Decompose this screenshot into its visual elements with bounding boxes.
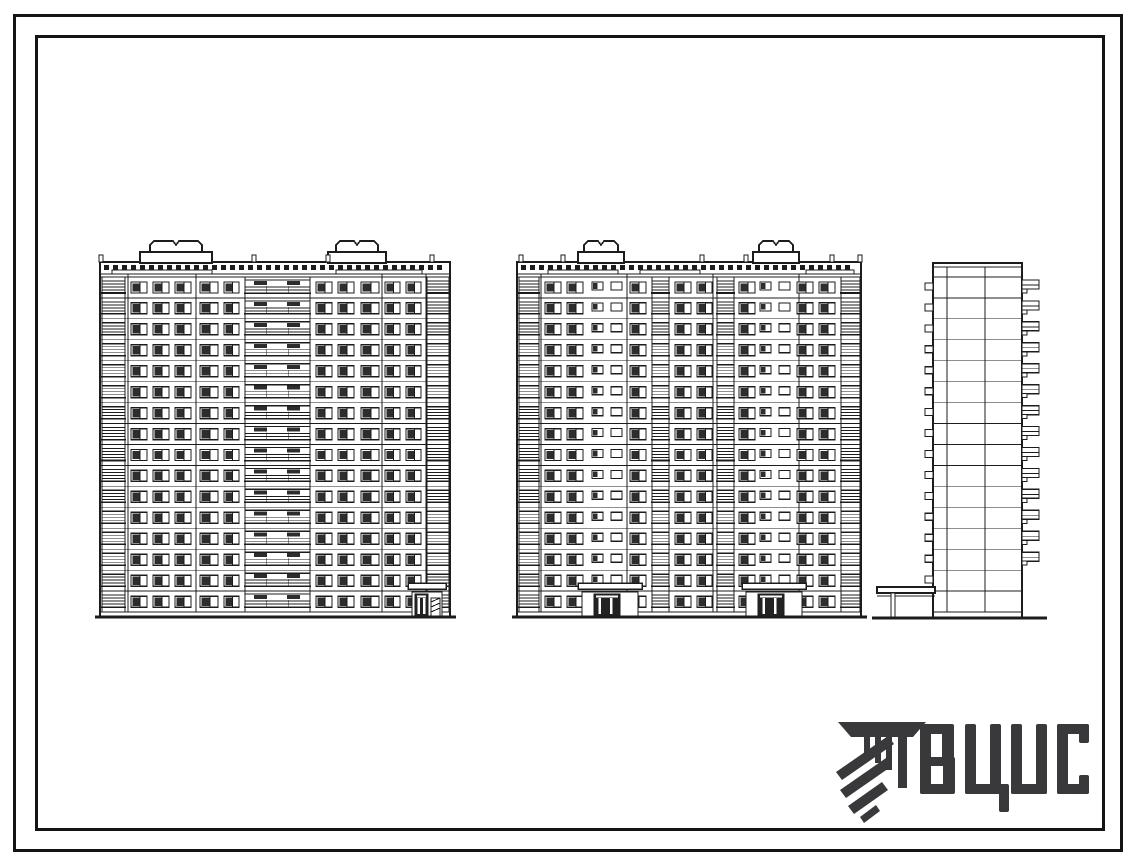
window-pane <box>154 597 161 605</box>
machine-room-hat <box>150 241 202 252</box>
window-pane <box>176 472 183 480</box>
window-pane <box>631 409 638 417</box>
letter-stroke <box>965 724 976 794</box>
parapet-dentil <box>593 265 598 270</box>
small-window <box>611 429 622 437</box>
small-window-pane <box>593 493 598 499</box>
side-end-elevation <box>872 263 1047 618</box>
window-pane <box>154 535 161 543</box>
loggia-window <box>254 511 267 515</box>
loggia-window <box>254 532 267 536</box>
parapet-dentil <box>539 265 544 270</box>
loggia-window <box>254 323 267 327</box>
window-pane <box>407 555 414 563</box>
parapet-dentil <box>383 265 388 270</box>
window-pane <box>362 472 370 480</box>
window-pane <box>317 346 324 354</box>
balcony-end-stub <box>925 513 933 520</box>
window-pane <box>317 304 324 312</box>
parapet-dentil <box>728 265 733 270</box>
small-window-pane <box>761 346 766 352</box>
rear-facade-elevation <box>512 241 867 617</box>
small-window <box>611 282 622 290</box>
window-pane <box>631 555 638 563</box>
small-window-pane <box>761 283 766 289</box>
window-pane <box>201 555 209 563</box>
window-pane <box>568 325 575 333</box>
emblem-stripe <box>860 805 880 823</box>
window-pane <box>176 597 183 605</box>
parapet-dentil <box>248 265 253 270</box>
window-pane <box>132 493 139 501</box>
parapet-dentil <box>338 265 343 270</box>
window-pane <box>546 535 553 543</box>
window-pane <box>568 535 575 543</box>
window-pane <box>154 472 161 480</box>
parapet-dentil <box>836 265 841 270</box>
small-window-pane <box>761 493 766 499</box>
window-pane <box>201 430 209 438</box>
attic-grille <box>112 270 212 274</box>
window-pane <box>201 535 209 543</box>
window-pane <box>317 535 324 543</box>
loggia-window <box>287 302 300 306</box>
parapet-dentil <box>401 265 406 270</box>
window-pane <box>631 472 638 480</box>
window-pane <box>631 514 638 522</box>
window-pane <box>386 325 393 333</box>
window-pane <box>676 597 683 605</box>
small-window-pane <box>593 472 598 478</box>
parapet-dentil <box>791 265 796 270</box>
window-pane <box>698 514 705 522</box>
window-pane <box>317 325 324 333</box>
parapet-dentil <box>557 265 562 270</box>
window-pane <box>407 346 414 354</box>
window-pane <box>132 451 139 459</box>
window-pane <box>339 576 346 584</box>
window-pane <box>546 451 553 459</box>
window-pane <box>339 388 346 396</box>
window-pane <box>698 472 705 480</box>
window-pane <box>201 514 209 522</box>
balcony-bracket <box>1022 457 1027 461</box>
window-pane <box>225 555 232 563</box>
window-pane <box>676 346 683 354</box>
window-pane <box>631 367 638 375</box>
window-pane <box>820 430 827 438</box>
window-pane <box>568 388 575 396</box>
window-pane <box>132 514 139 522</box>
logo-letter <box>920 724 955 794</box>
window-pane <box>154 346 161 354</box>
small-window-pane <box>593 451 598 457</box>
balcony-bracket <box>1022 394 1027 398</box>
balcony-end-stub <box>925 304 933 311</box>
small-window-pane <box>761 304 766 310</box>
window-pane <box>176 555 183 563</box>
window-pane <box>676 304 683 312</box>
window-pane <box>820 325 827 333</box>
window-pane <box>362 304 370 312</box>
window-pane <box>362 325 370 333</box>
loggia-window <box>287 323 300 327</box>
window-pane <box>798 346 805 354</box>
parapet-dentil <box>266 265 271 270</box>
roof-vent <box>700 255 704 262</box>
parapet-dentil <box>302 265 307 270</box>
loggia-window <box>254 490 267 494</box>
window-pane <box>740 304 747 312</box>
balcony-bracket <box>1022 289 1027 293</box>
window-pane <box>201 283 209 291</box>
window-pane <box>546 576 553 584</box>
window-pane <box>698 597 705 605</box>
door-glazing <box>599 598 602 614</box>
small-window-pane <box>761 388 766 394</box>
parapet-dentil <box>656 265 661 270</box>
parapet-dentil <box>203 265 208 270</box>
window-pane <box>176 535 183 543</box>
parapet-dentil <box>365 265 370 270</box>
small-window-pane <box>761 430 766 436</box>
parapet-dentil <box>548 265 553 270</box>
balcony-end-stub <box>925 409 933 416</box>
window-pane <box>568 283 575 291</box>
emblem-beam <box>838 722 926 737</box>
window-pane <box>631 304 638 312</box>
parapet-dentil <box>602 265 607 270</box>
window-pane <box>132 409 139 417</box>
window-pane <box>339 325 346 333</box>
window-pane <box>176 451 183 459</box>
balcony-end-stub <box>925 492 933 499</box>
small-window-pane <box>761 409 766 415</box>
balcony-end-stub <box>925 388 933 395</box>
parapet-dentil <box>566 265 571 270</box>
window-pane <box>698 409 705 417</box>
window-pane <box>132 388 139 396</box>
window-pane <box>201 451 209 459</box>
window-pane <box>676 472 683 480</box>
window-pane <box>225 430 232 438</box>
roof-vent <box>561 255 565 262</box>
small-window-pane <box>761 555 766 561</box>
small-window-pane <box>593 367 598 373</box>
window-pane <box>154 283 161 291</box>
small-window <box>779 282 790 290</box>
window-pane <box>568 472 575 480</box>
loggia-window <box>254 281 267 285</box>
window-pane <box>386 388 393 396</box>
window-pane <box>676 451 683 459</box>
parapet-dentil <box>683 265 688 270</box>
window-pane <box>317 576 324 584</box>
parapet-dentil <box>800 265 805 270</box>
small-window <box>611 387 622 395</box>
small-window-pane <box>761 451 766 457</box>
roof-vent <box>519 255 523 262</box>
window-pane <box>407 325 414 333</box>
entrance-canopy <box>578 583 642 589</box>
parapet-dentil <box>584 265 589 270</box>
window-pane <box>546 304 553 312</box>
window-pane <box>225 514 232 522</box>
parapet-dentil <box>194 265 199 270</box>
small-window-pane <box>593 346 598 352</box>
letter-stroke <box>1079 724 1089 743</box>
parapet-dentil <box>773 265 778 270</box>
small-window-pane <box>593 283 598 289</box>
window-pane <box>798 451 805 459</box>
window-pane <box>820 555 827 563</box>
parapet-dentil <box>620 265 625 270</box>
window-pane <box>546 367 553 375</box>
window-pane <box>317 388 324 396</box>
parapet-dentil <box>167 265 172 270</box>
roof-vent <box>326 255 330 262</box>
balcony-end-stub <box>925 576 933 583</box>
window-pane <box>339 430 346 438</box>
window-pane <box>176 409 183 417</box>
loggia-window <box>287 574 300 578</box>
parapet-dentil <box>392 265 397 270</box>
window-pane <box>225 388 232 396</box>
window-pane <box>798 304 805 312</box>
loggia-window <box>287 407 300 411</box>
window-pane <box>568 451 575 459</box>
roof-vent <box>858 255 862 262</box>
window-pane <box>362 514 370 522</box>
balcony-end-stub <box>925 283 933 290</box>
parapet-dentil <box>347 265 352 270</box>
window-pane <box>132 304 139 312</box>
balcony-end-stub <box>925 325 933 332</box>
small-window <box>779 575 790 583</box>
window-pane <box>317 597 324 605</box>
window-pane <box>201 472 209 480</box>
window-pane <box>362 346 370 354</box>
window-pane <box>698 304 705 312</box>
window-pane <box>132 535 139 543</box>
window-pane <box>698 367 705 375</box>
door-glazing <box>417 598 420 614</box>
window-pane <box>631 535 638 543</box>
window-pane <box>546 514 553 522</box>
window-pane <box>407 283 414 291</box>
window-pane <box>740 430 747 438</box>
window-pane <box>225 576 232 584</box>
balcony-bracket <box>1022 373 1027 377</box>
small-window <box>779 450 790 458</box>
window-pane <box>546 325 553 333</box>
window-pane <box>362 367 370 375</box>
roof-vent <box>744 255 748 262</box>
side-balcony <box>1022 427 1039 436</box>
window-pane <box>225 472 232 480</box>
balcony-end-stub <box>925 555 933 562</box>
elevator-machine-room <box>578 252 624 263</box>
window-pane <box>568 430 575 438</box>
side-balcony <box>1022 385 1039 394</box>
loggia-window <box>287 428 300 432</box>
window-pane <box>339 493 346 501</box>
window-pane <box>154 576 161 584</box>
window-pane <box>820 409 827 417</box>
window-pane <box>339 304 346 312</box>
parapet-dentil <box>131 265 136 270</box>
window-pane <box>676 388 683 396</box>
window-pane <box>698 555 705 563</box>
window-pane <box>407 451 414 459</box>
letter-stroke <box>1079 775 1089 794</box>
window-pane <box>407 388 414 396</box>
parapet-dentil <box>845 265 850 270</box>
window-pane <box>339 283 346 291</box>
window-pane <box>201 388 209 396</box>
window-pane <box>386 409 393 417</box>
main-facade-elevation <box>95 241 456 617</box>
parapet-dentil <box>647 265 652 270</box>
window-pane <box>568 493 575 501</box>
window-pane <box>339 597 346 605</box>
balcony-bracket <box>1022 477 1027 481</box>
balcony-end-stub <box>925 346 933 353</box>
window-pane <box>386 576 393 584</box>
window-pane <box>631 430 638 438</box>
window-pane <box>676 283 683 291</box>
loggia-window <box>254 428 267 432</box>
loggia-window <box>287 595 300 599</box>
window-pane <box>201 409 209 417</box>
window-pane <box>362 451 370 459</box>
small-window <box>779 512 790 520</box>
parapet-dentil <box>629 265 634 270</box>
parapet-dentil <box>230 265 235 270</box>
small-window <box>611 575 622 583</box>
window-pane <box>546 472 553 480</box>
window-pane <box>740 283 747 291</box>
balcony-bracket <box>1022 415 1027 419</box>
window-pane <box>546 283 553 291</box>
vcis-logo-text <box>920 724 1089 812</box>
small-window <box>779 408 790 416</box>
window-pane <box>362 597 370 605</box>
window-pane <box>132 325 139 333</box>
window-pane <box>676 409 683 417</box>
window-pane <box>798 409 805 417</box>
window-pane <box>820 576 827 584</box>
balcony-bracket <box>1022 561 1027 565</box>
emblem-bar <box>898 735 907 788</box>
elevator-machine-room <box>328 252 386 263</box>
small-window <box>611 366 622 374</box>
window-pane <box>698 346 705 354</box>
small-window <box>779 491 790 499</box>
window-pane <box>820 472 827 480</box>
window-pane <box>676 514 683 522</box>
window-pane <box>568 597 575 605</box>
attic-grille <box>806 270 854 274</box>
small-window <box>779 554 790 562</box>
window-pane <box>317 451 324 459</box>
parapet-dentil <box>710 265 715 270</box>
window-pane <box>798 514 805 522</box>
window-pane <box>676 493 683 501</box>
machine-room-hat <box>336 241 378 252</box>
window-pane <box>798 555 805 563</box>
small-window <box>611 554 622 562</box>
window-pane <box>339 409 346 417</box>
window-pane <box>740 388 747 396</box>
roof-vent <box>252 255 256 262</box>
window-pane <box>201 576 209 584</box>
loggia-window <box>254 449 267 453</box>
window-pane <box>386 472 393 480</box>
window-pane <box>176 304 183 312</box>
elevator-machine-room <box>140 252 212 263</box>
parapet-dentil <box>212 265 217 270</box>
window-pane <box>407 514 414 522</box>
drawing-sheet: ВЦИС <box>0 0 1134 863</box>
window-pane <box>820 535 827 543</box>
balcony-bracket <box>1022 436 1027 440</box>
parapet-dentil <box>818 265 823 270</box>
small-window-pane <box>761 325 766 331</box>
small-window-pane <box>761 367 766 373</box>
window-pane <box>740 346 747 354</box>
window-pane <box>201 493 209 501</box>
letter-stroke <box>1057 724 1068 794</box>
loggia-window <box>287 281 300 285</box>
balcony-bracket <box>1022 519 1027 523</box>
small-window-pane <box>761 472 766 478</box>
window-pane <box>154 430 161 438</box>
small-window-pane <box>593 325 598 331</box>
side-balcony <box>1022 322 1039 331</box>
entrance-canopy <box>408 583 446 589</box>
small-window <box>779 429 790 437</box>
window-pane <box>225 535 232 543</box>
window-pane <box>798 535 805 543</box>
window-pane <box>154 514 161 522</box>
window-pane <box>568 346 575 354</box>
logo-letter <box>1011 724 1047 794</box>
parapet-dentil <box>746 265 751 270</box>
window-pane <box>698 388 705 396</box>
parapet-dentil <box>221 265 226 270</box>
window-pane <box>176 367 183 375</box>
window-pane <box>132 283 139 291</box>
small-window-pane <box>593 514 598 520</box>
window-pane <box>362 430 370 438</box>
parapet-dentil <box>530 265 535 270</box>
window-pane <box>740 493 747 501</box>
window-pane <box>362 409 370 417</box>
roof-vent <box>430 255 434 262</box>
window-pane <box>676 535 683 543</box>
window-pane <box>339 535 346 543</box>
window-pane <box>546 493 553 501</box>
door-transom <box>760 596 782 598</box>
window-pane <box>339 472 346 480</box>
parapet-dentil <box>176 265 181 270</box>
window-pane <box>154 493 161 501</box>
parapet-dentil <box>410 265 415 270</box>
parapet-dentil <box>104 265 109 270</box>
window-pane <box>820 451 827 459</box>
window-pane <box>317 367 324 375</box>
